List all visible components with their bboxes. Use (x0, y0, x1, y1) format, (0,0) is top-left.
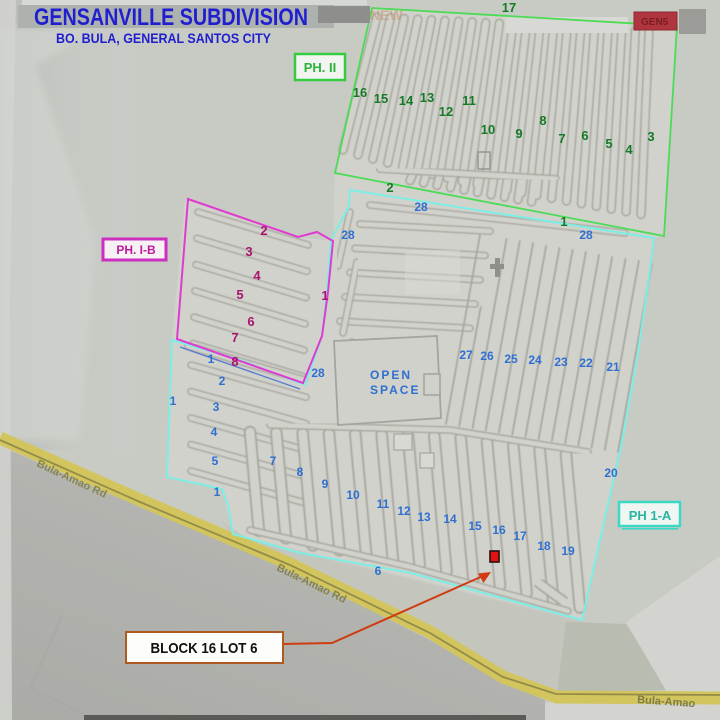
svg-text:10: 10 (481, 122, 495, 137)
svg-text:22: 22 (579, 356, 593, 370)
svg-text:25: 25 (504, 352, 518, 366)
svg-text:6: 6 (375, 564, 382, 578)
svg-text:27: 27 (459, 348, 473, 362)
svg-text:15: 15 (468, 519, 482, 533)
svg-text:1: 1 (170, 394, 177, 408)
svg-text:8: 8 (297, 465, 304, 479)
svg-text:OPEN: OPEN (370, 368, 412, 382)
svg-text:5: 5 (212, 454, 219, 468)
svg-text:9: 9 (515, 126, 522, 141)
svg-text:11: 11 (462, 93, 476, 108)
svg-text:1: 1 (208, 352, 215, 366)
svg-text:28: 28 (414, 200, 428, 214)
svg-text:9: 9 (322, 477, 329, 491)
svg-text:18: 18 (537, 539, 551, 553)
svg-text:12: 12 (439, 104, 453, 119)
svg-text:3: 3 (647, 129, 654, 144)
svg-text:4: 4 (253, 268, 261, 283)
svg-text:7: 7 (231, 330, 238, 345)
svg-text:10: 10 (346, 488, 360, 502)
svg-text:PH. II: PH. II (304, 60, 337, 75)
svg-text:NEW: NEW (370, 7, 403, 23)
svg-text:BO. BULA, GENERAL SANTOS CITY: BO. BULA, GENERAL SANTOS CITY (56, 30, 272, 46)
svg-text:8: 8 (539, 113, 546, 128)
svg-text:19: 19 (561, 544, 575, 558)
svg-text:13: 13 (417, 510, 431, 524)
svg-text:6: 6 (247, 314, 254, 329)
svg-text:14: 14 (399, 93, 414, 108)
svg-text:6: 6 (581, 128, 588, 143)
svg-text:3: 3 (245, 244, 252, 259)
svg-text:16: 16 (492, 523, 506, 537)
svg-text:14: 14 (443, 512, 457, 526)
svg-text:2: 2 (219, 374, 226, 388)
svg-text:4: 4 (625, 142, 633, 157)
svg-text:16: 16 (353, 85, 367, 100)
svg-text:11: 11 (377, 497, 390, 511)
svg-text:2: 2 (260, 223, 267, 238)
svg-text:28: 28 (311, 366, 325, 380)
svg-text:23: 23 (554, 355, 568, 369)
svg-text:GENSANVILLE SUBDIVISION: GENSANVILLE SUBDIVISION (34, 4, 308, 31)
svg-text:28: 28 (341, 228, 355, 242)
svg-text:15: 15 (374, 91, 388, 106)
svg-text:26: 26 (480, 349, 494, 363)
svg-text:BLOCK 16 LOT 6: BLOCK 16 LOT 6 (151, 640, 258, 657)
svg-text:21: 21 (606, 360, 620, 374)
svg-text:3: 3 (213, 400, 220, 414)
svg-text:PH. I-B: PH. I-B (116, 243, 156, 257)
svg-text:20: 20 (604, 466, 618, 480)
svg-text:12: 12 (397, 504, 411, 518)
svg-text:13: 13 (420, 90, 434, 105)
svg-text:7: 7 (270, 454, 277, 468)
svg-text:17: 17 (502, 0, 516, 15)
svg-text:4: 4 (211, 425, 218, 439)
svg-text:28: 28 (579, 228, 593, 242)
svg-text:GEN5: GEN5 (641, 17, 669, 28)
svg-text:PH 1-A: PH 1-A (629, 508, 672, 523)
svg-text:5: 5 (236, 287, 243, 302)
svg-text:1: 1 (214, 485, 221, 499)
svg-text:5: 5 (605, 136, 612, 151)
svg-text:24: 24 (528, 353, 542, 367)
svg-text:2: 2 (386, 180, 393, 195)
svg-text:SPACE: SPACE (370, 383, 420, 397)
svg-text:1: 1 (560, 214, 567, 229)
svg-text:1: 1 (321, 288, 328, 303)
svg-text:17: 17 (513, 529, 527, 543)
svg-text:8: 8 (231, 354, 238, 369)
svg-text:7: 7 (558, 131, 565, 146)
